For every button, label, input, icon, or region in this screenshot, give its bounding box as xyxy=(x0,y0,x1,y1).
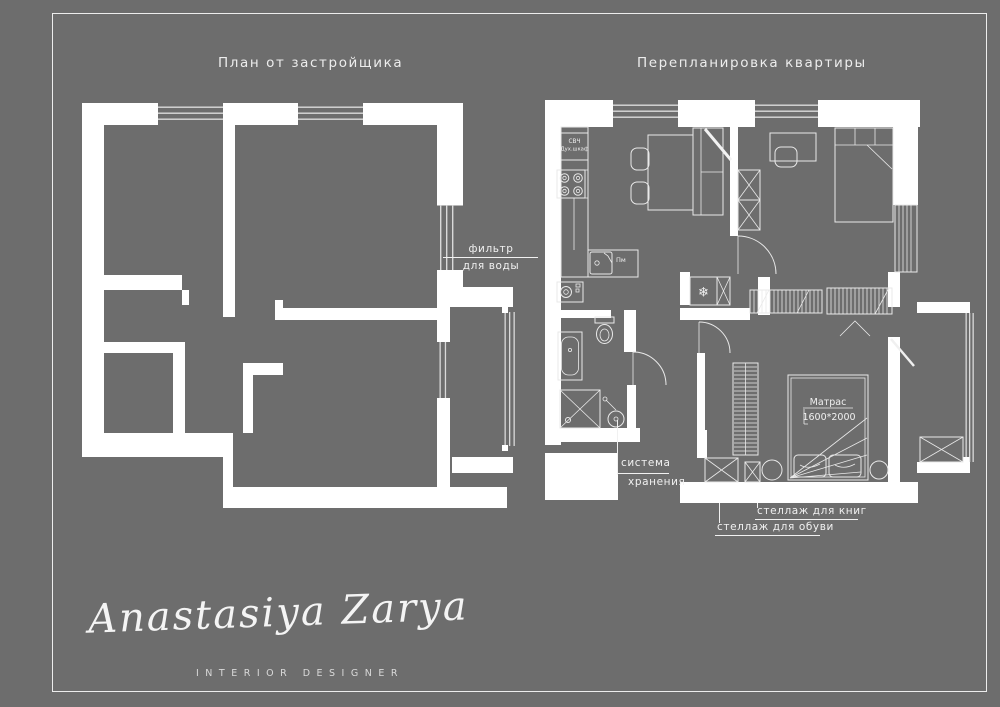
mattress-size-label: 1600*2000 xyxy=(802,412,855,423)
dishwasher-label: Пм xyxy=(616,256,626,264)
developer-floor-plan xyxy=(75,93,520,515)
shoe-shelf-underline xyxy=(715,535,820,536)
corner-mark xyxy=(840,321,870,336)
wardrobe-boxes xyxy=(738,170,760,230)
shoe-shelf-label: стеллаж для обуви xyxy=(717,521,834,533)
bedroom-door xyxy=(699,322,730,353)
shoe-shelf-leader-line xyxy=(719,503,720,523)
storage-label-line2: хранения xyxy=(628,476,685,488)
storage-underline xyxy=(617,473,669,474)
bed-top-right xyxy=(835,128,893,222)
bathroom-door xyxy=(633,352,666,385)
sofa xyxy=(693,128,723,215)
dining-set xyxy=(631,135,693,210)
right-wall-shelf xyxy=(895,205,917,272)
poster-background: План от застройщика Перепланировка кварт… xyxy=(0,0,1000,707)
bedroom-bed: Матрас 1600*2000 xyxy=(762,375,888,480)
microwave-label: СВЧ xyxy=(569,139,581,145)
desk-and-chair xyxy=(770,133,816,167)
fridge-icon: ❄ xyxy=(690,277,730,305)
right-plan-title: Перепланировка квартиры xyxy=(637,55,867,71)
bookshelf-label: стеллаж для книг xyxy=(757,505,867,517)
balcony-box xyxy=(920,437,963,462)
left-plan-title: План от застройщика xyxy=(218,55,403,71)
snowflake-icon: ❄ xyxy=(698,286,709,301)
storage-label-line1: система xyxy=(621,457,671,469)
bedside-table-left xyxy=(762,460,782,480)
round-sink-icon xyxy=(603,397,624,427)
bookshelf-underline xyxy=(755,519,858,520)
entry-door-leaf xyxy=(705,129,731,160)
partition-door xyxy=(738,236,776,274)
window-glazing-right-plan xyxy=(613,105,974,464)
vanity-sink-icon xyxy=(558,332,582,380)
storage-leader-line xyxy=(617,420,618,475)
shower-icon xyxy=(560,390,600,428)
mattress-label: Матрас xyxy=(810,397,847,408)
water-filter-leader-line xyxy=(443,257,538,258)
walls-left-plan xyxy=(82,103,513,508)
storage-wardrobe xyxy=(705,363,760,482)
kitchen-block: СВЧ Дух.шкаф Пм xyxy=(557,127,638,277)
bedside-table-right xyxy=(870,461,888,479)
designer-subtitle: INTERIOR DESIGNER xyxy=(196,668,404,679)
oven-label: Дух.шкаф xyxy=(561,147,589,153)
water-filter-label-line1: фильтр xyxy=(455,243,527,255)
bookshelf-bands xyxy=(750,288,892,314)
bathroom-fixtures xyxy=(557,282,666,428)
kitchen-sink-icon xyxy=(590,252,612,274)
water-filter-label-line2: для воды xyxy=(455,260,527,272)
toilet-icon xyxy=(595,317,614,344)
replanned-floor-plan: СВЧ Дух.шкаф Пм xyxy=(545,93,985,545)
